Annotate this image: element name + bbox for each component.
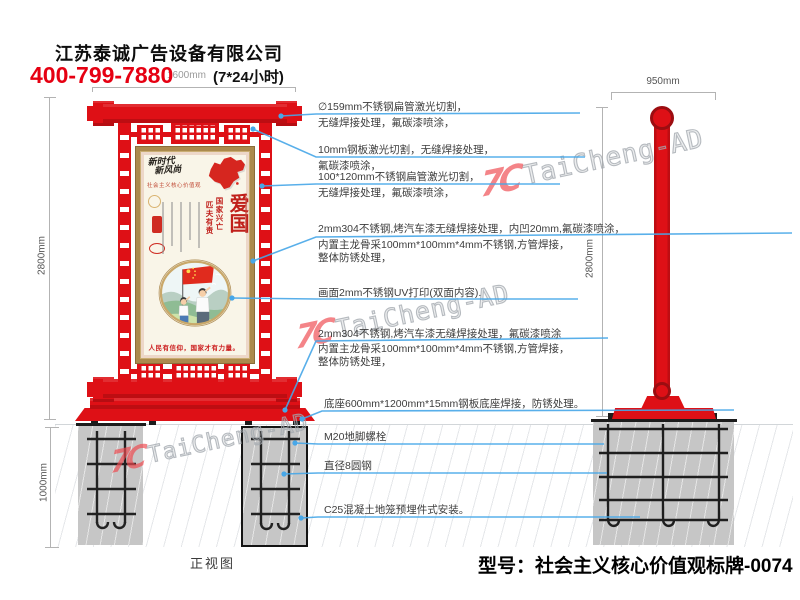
watermark-text: TaiCheng-AD [521, 124, 706, 191]
poem-column [189, 202, 191, 240]
annotation-line: 无缝焊接处理，氟碳漆喷涂， [318, 117, 455, 129]
dim-tick [715, 92, 716, 100]
lattice-panel [172, 362, 218, 382]
lattice-panel [224, 364, 250, 382]
annotation-line: 10mm钢板激光切割，无缝焊接处理， [318, 144, 494, 156]
annotation-line: 2mm304不锈钢,烤汽车漆无缝焊接处理，内凹20mm,氟碳漆喷涂， [318, 223, 625, 235]
base-plate [75, 408, 315, 421]
dim-tick [611, 92, 612, 100]
annotation-line: M20地脚螺栓 [324, 431, 386, 443]
pole-joint [653, 382, 671, 400]
poem-column [162, 202, 164, 254]
china-map-graphic [202, 154, 248, 192]
top-beam [103, 104, 287, 123]
rebar-right-pier [241, 426, 308, 547]
dim-tick [295, 87, 296, 92]
frame-pillar-left [118, 122, 131, 385]
front-view-label: 正视图 [190, 553, 235, 572]
poster-subtitle: 社会主义核心价值观 [147, 181, 201, 189]
poster-motto-left: 匹夫有责 [205, 201, 214, 235]
dim-tick [596, 107, 608, 108]
frame-pillar-right [259, 122, 272, 385]
annotation-line: C25混凝土地笼预埋件式安装。 [324, 504, 469, 516]
annotation-line: ∅159mm不锈钢扁管激光切割， [318, 101, 467, 113]
dim-tick [45, 427, 59, 428]
poster-slogan: 人民有信仰，国家才有力量。 [144, 342, 244, 352]
annotation-line: 底座600mm*1200mm*15mm钢板底座焊接，防锈处理。 [324, 398, 584, 410]
dim-line-side-width [611, 92, 716, 93]
annotation-line: 内置主龙骨采100mm*100mm*4mm不锈钢,方管焊接， [318, 239, 569, 251]
model-number: 型号：社会主义核心价值观标牌-0074 [478, 551, 793, 578]
annotation-line: 内置主龙骨采100mm*100mm*4mm不锈钢,方管焊接， [318, 343, 569, 355]
taicheng-logo-icon: 7C [480, 157, 519, 206]
poster-motto-right: 国家兴亡 [215, 197, 224, 231]
side-base-plate [612, 408, 716, 419]
dim-line-front-height [49, 97, 50, 420]
annotation-line: 100*120mm不锈钢扁管激光切割， [318, 171, 480, 183]
poem-column [180, 202, 182, 252]
annotation-line: 直径8圆钢 [324, 460, 372, 472]
side-pole [654, 116, 670, 393]
lattice-panel [137, 364, 163, 382]
dim-label-side-height: 2800mm [585, 227, 596, 291]
side-script [245, 197, 247, 233]
dim-line-foundation [50, 427, 51, 548]
pole-top-cap [650, 106, 674, 130]
annotation-line: 画面2mm不锈钢UV打印(双面内容). [318, 287, 481, 299]
poem-column [171, 202, 173, 246]
poster-panel: 新时代 新风尚 社会主义核心价值观 国家兴亡 匹夫有责 爱国 [136, 147, 254, 363]
lattice-panel [137, 125, 163, 144]
hotline-hours: (7*24小时) [213, 66, 284, 87]
dim-label-front-height: 2800mm [37, 224, 48, 288]
watermark: 7C TaiCheng-AD [476, 119, 707, 205]
dim-tick [44, 97, 56, 98]
dim-tick [44, 419, 56, 420]
dim-tick [45, 547, 59, 548]
annotation-line: 2mm304不锈钢,烤汽车漆无缝焊接处理，氟碳漆喷涂 [318, 328, 561, 340]
rebar-side-block [593, 421, 734, 545]
rebar-left-pier [78, 426, 143, 545]
base-bar [90, 398, 300, 409]
lattice-panel [224, 125, 250, 144]
annotation-line: 整体防锈处理， [318, 356, 392, 368]
annotation-line: 无缝焊接处理，氟碳漆喷涂， [318, 187, 455, 199]
dim-tick [596, 416, 608, 417]
poster-calligraphy: 新时代 新风尚 [147, 156, 181, 176]
lattice-panel [171, 123, 219, 144]
pier-top-line-left [76, 423, 146, 426]
annotation-line: 整体防锈处理， [318, 252, 392, 264]
drawing-canvas: 新时代 新风尚 社会主义核心价值观 国家兴亡 匹夫有责 爱国 [0, 0, 800, 600]
seal-stamp [152, 216, 162, 233]
dim-label-side-width: 950mm [631, 76, 695, 87]
poem-column [198, 202, 200, 248]
cloud-motif [148, 195, 161, 208]
dim-line-side-height [602, 107, 603, 417]
flag-illustration [157, 258, 233, 328]
dim-label-foundation: 1000mm [39, 451, 50, 515]
service-phone: 400-799-7880 [30, 62, 173, 89]
